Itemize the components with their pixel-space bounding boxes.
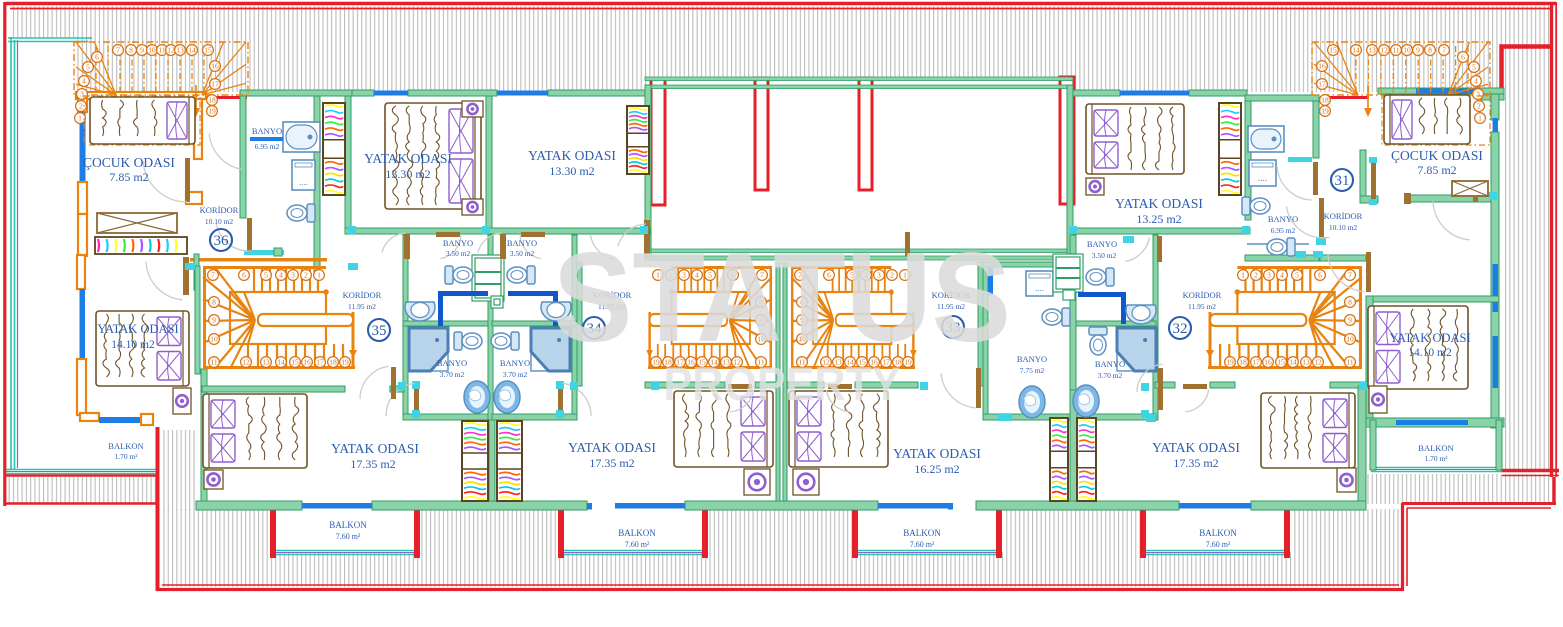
svg-text:ÇOCUK ODASI: ÇOCUK ODASI (83, 155, 175, 170)
svg-text:....: .... (1258, 173, 1267, 183)
svg-text:9: 9 (1416, 46, 1420, 55)
svg-text:3.70 m2: 3.70 m2 (503, 370, 528, 379)
svg-text:7: 7 (116, 46, 120, 55)
svg-text:18: 18 (1239, 358, 1247, 367)
svg-text:YATAK ODASI: YATAK ODASI (1389, 331, 1470, 345)
svg-text:YATAK ODASI: YATAK ODASI (97, 322, 178, 336)
svg-text:BALKON: BALKON (903, 528, 941, 538)
svg-text:15: 15 (204, 46, 212, 55)
svg-text:3.70 m2: 3.70 m2 (1098, 371, 1123, 380)
svg-text:2: 2 (1254, 271, 1258, 280)
svg-text:31: 31 (1335, 173, 1350, 189)
svg-text:BANYO: BANYO (1017, 354, 1047, 364)
svg-text:12: 12 (1314, 358, 1322, 367)
svg-text:PROPERTY: PROPERTY (664, 357, 901, 410)
svg-text:16: 16 (303, 358, 311, 367)
svg-text:BANYO: BANYO (437, 358, 467, 368)
svg-text:10: 10 (1346, 335, 1354, 344)
svg-text:14: 14 (277, 358, 285, 367)
svg-text:KORİDOR: KORİDOR (200, 205, 239, 215)
svg-text:16: 16 (211, 62, 219, 71)
svg-text:3.50 m2: 3.50 m2 (446, 249, 471, 258)
svg-text:11: 11 (158, 46, 165, 55)
svg-text:7.75 m2: 7.75 m2 (1020, 366, 1045, 375)
svg-text:9: 9 (212, 316, 216, 325)
svg-text:1: 1 (1478, 114, 1482, 123)
svg-text:14: 14 (188, 46, 196, 55)
svg-text:BALKON: BALKON (1199, 528, 1237, 538)
svg-text:6.95 m2: 6.95 m2 (1271, 226, 1296, 235)
svg-text:17: 17 (1318, 80, 1326, 89)
svg-text:BANYO: BANYO (507, 238, 537, 248)
svg-text:15: 15 (1277, 358, 1285, 367)
svg-text:7.60 m²: 7.60 m² (625, 540, 650, 549)
svg-text:16: 16 (1318, 62, 1326, 71)
svg-text:5: 5 (264, 271, 268, 280)
svg-text:18: 18 (208, 96, 216, 105)
svg-text:5: 5 (1472, 63, 1476, 72)
svg-text:1: 1 (78, 114, 82, 123)
svg-text:KORİDOR: KORİDOR (343, 290, 382, 300)
svg-text:2: 2 (304, 271, 308, 280)
svg-text:BANYO: BANYO (1095, 359, 1125, 369)
svg-text:1: 1 (1241, 271, 1245, 280)
svg-text:7.85 m2: 7.85 m2 (109, 170, 148, 184)
svg-text:BALKON: BALKON (1418, 443, 1453, 453)
svg-text:11: 11 (1346, 358, 1353, 367)
svg-text:13.30 m2: 13.30 m2 (385, 167, 430, 181)
svg-text:13.30 m2: 13.30 m2 (549, 164, 594, 178)
svg-text:4: 4 (1474, 77, 1478, 86)
svg-text:2: 2 (79, 102, 83, 111)
svg-text:YATAK ODASI: YATAK ODASI (364, 151, 452, 166)
svg-text:17.35 m2: 17.35 m2 (350, 457, 395, 471)
svg-text:17.35 m2: 17.35 m2 (1173, 456, 1218, 470)
svg-text:19: 19 (341, 358, 349, 367)
svg-text:YATAK ODASI: YATAK ODASI (568, 440, 656, 455)
svg-text:17.35 m2: 17.35 m2 (589, 456, 634, 470)
svg-text:3.50 m2: 3.50 m2 (510, 249, 535, 258)
svg-text:BALKON: BALKON (618, 528, 656, 538)
svg-text:14: 14 (1289, 358, 1297, 367)
svg-text:3: 3 (1476, 90, 1480, 99)
svg-text:7: 7 (211, 271, 215, 280)
svg-text:17: 17 (1252, 358, 1260, 367)
svg-text:17: 17 (316, 358, 324, 367)
svg-text:3: 3 (1267, 271, 1271, 280)
svg-text:19: 19 (208, 107, 216, 116)
svg-text:YATAK ODASI: YATAK ODASI (1115, 196, 1203, 211)
svg-text:14.10 m2: 14.10 m2 (111, 339, 155, 351)
svg-text:13.25 m2: 13.25 m2 (1136, 212, 1181, 226)
svg-text:STATUS: STATUS (553, 226, 1011, 368)
svg-text:6: 6 (95, 53, 99, 62)
svg-text:YATAK ODASI: YATAK ODASI (1152, 440, 1240, 455)
svg-text:BALKON: BALKON (329, 520, 367, 530)
svg-text:BANYO: BANYO (252, 126, 282, 136)
svg-text:7.60 m²: 7.60 m² (910, 540, 935, 549)
svg-text:6: 6 (1318, 271, 1322, 280)
svg-text:BALKON: BALKON (108, 441, 143, 451)
svg-text:1: 1 (317, 271, 321, 280)
svg-text:18: 18 (329, 358, 337, 367)
svg-text:1.70 m²: 1.70 m² (114, 452, 138, 461)
svg-text:KORİDOR: KORİDOR (1324, 211, 1363, 221)
svg-text:7: 7 (1442, 46, 1446, 55)
svg-text:14: 14 (1352, 46, 1360, 55)
svg-text:14.10 m2: 14.10 m2 (1408, 347, 1452, 359)
svg-text:4: 4 (1280, 271, 1284, 280)
svg-text:....: .... (299, 177, 308, 187)
svg-text:7.85 m2: 7.85 m2 (1417, 163, 1456, 177)
svg-text:BANYO: BANYO (1087, 239, 1117, 249)
svg-text:15: 15 (1329, 46, 1337, 55)
svg-text:7.60 m²: 7.60 m² (336, 532, 361, 541)
svg-text:11.95 m2: 11.95 m2 (1188, 302, 1216, 311)
svg-text:16: 16 (1264, 358, 1272, 367)
svg-text:BANYO: BANYO (443, 238, 473, 248)
svg-text:17: 17 (211, 80, 219, 89)
svg-text:7.60 m²: 7.60 m² (1206, 540, 1231, 549)
svg-text:18: 18 (1321, 96, 1329, 105)
svg-text:ÇOCUK ODASI: ÇOCUK ODASI (1391, 148, 1483, 163)
svg-text:2: 2 (1477, 102, 1481, 111)
svg-text:9: 9 (140, 46, 144, 55)
svg-text:6: 6 (242, 271, 246, 280)
svg-text:19: 19 (1321, 107, 1329, 116)
svg-text:8: 8 (129, 46, 133, 55)
svg-text:BANYO: BANYO (500, 358, 530, 368)
svg-text:8: 8 (1428, 46, 1432, 55)
svg-text:13: 13 (176, 46, 184, 55)
svg-text:13: 13 (1302, 358, 1310, 367)
svg-text:35: 35 (372, 323, 387, 339)
svg-text:12: 12 (167, 46, 175, 55)
svg-text:15: 15 (291, 358, 299, 367)
svg-text:11: 11 (1392, 46, 1399, 55)
svg-text:10: 10 (148, 46, 156, 55)
svg-text:YATAK ODASI: YATAK ODASI (331, 441, 419, 456)
svg-text:....: .... (1035, 283, 1044, 293)
svg-text:5: 5 (86, 63, 90, 72)
svg-text:10: 10 (1403, 46, 1411, 55)
svg-text:12: 12 (1380, 46, 1388, 55)
svg-text:3.70 m2: 3.70 m2 (440, 370, 465, 379)
svg-text:KORİDOR: KORİDOR (1183, 290, 1222, 300)
svg-text:5: 5 (1295, 271, 1299, 280)
svg-text:8: 8 (1348, 298, 1352, 307)
svg-text:10.10 m2: 10.10 m2 (1329, 223, 1358, 232)
svg-text:7: 7 (1348, 271, 1352, 280)
svg-text:BANYO: BANYO (1268, 214, 1298, 224)
svg-text:6: 6 (1461, 53, 1465, 62)
svg-text:10: 10 (210, 335, 218, 344)
svg-text:4: 4 (82, 77, 86, 86)
svg-text:3.50 m2: 3.50 m2 (1092, 251, 1117, 260)
svg-text:8: 8 (212, 298, 216, 307)
svg-text:36: 36 (214, 233, 230, 249)
svg-text:13: 13 (262, 358, 270, 367)
svg-text:1.70 m²: 1.70 m² (1424, 454, 1448, 463)
svg-text:4: 4 (279, 271, 283, 280)
svg-text:YATAK ODASI: YATAK ODASI (893, 446, 981, 461)
svg-text:19: 19 (1226, 358, 1234, 367)
svg-text:6.95 m2: 6.95 m2 (255, 142, 280, 151)
svg-text:YATAK ODASI: YATAK ODASI (528, 148, 616, 163)
svg-text:3: 3 (291, 271, 295, 280)
svg-text:12: 12 (242, 358, 250, 367)
svg-text:11.95 m2: 11.95 m2 (348, 302, 376, 311)
svg-text:13: 13 (1368, 46, 1376, 55)
svg-text:10.10 m2: 10.10 m2 (205, 217, 234, 226)
svg-text:32: 32 (1173, 321, 1188, 337)
svg-text:16.25 m2: 16.25 m2 (914, 462, 959, 476)
svg-text:11: 11 (210, 358, 217, 367)
svg-text:9: 9 (1348, 316, 1352, 325)
